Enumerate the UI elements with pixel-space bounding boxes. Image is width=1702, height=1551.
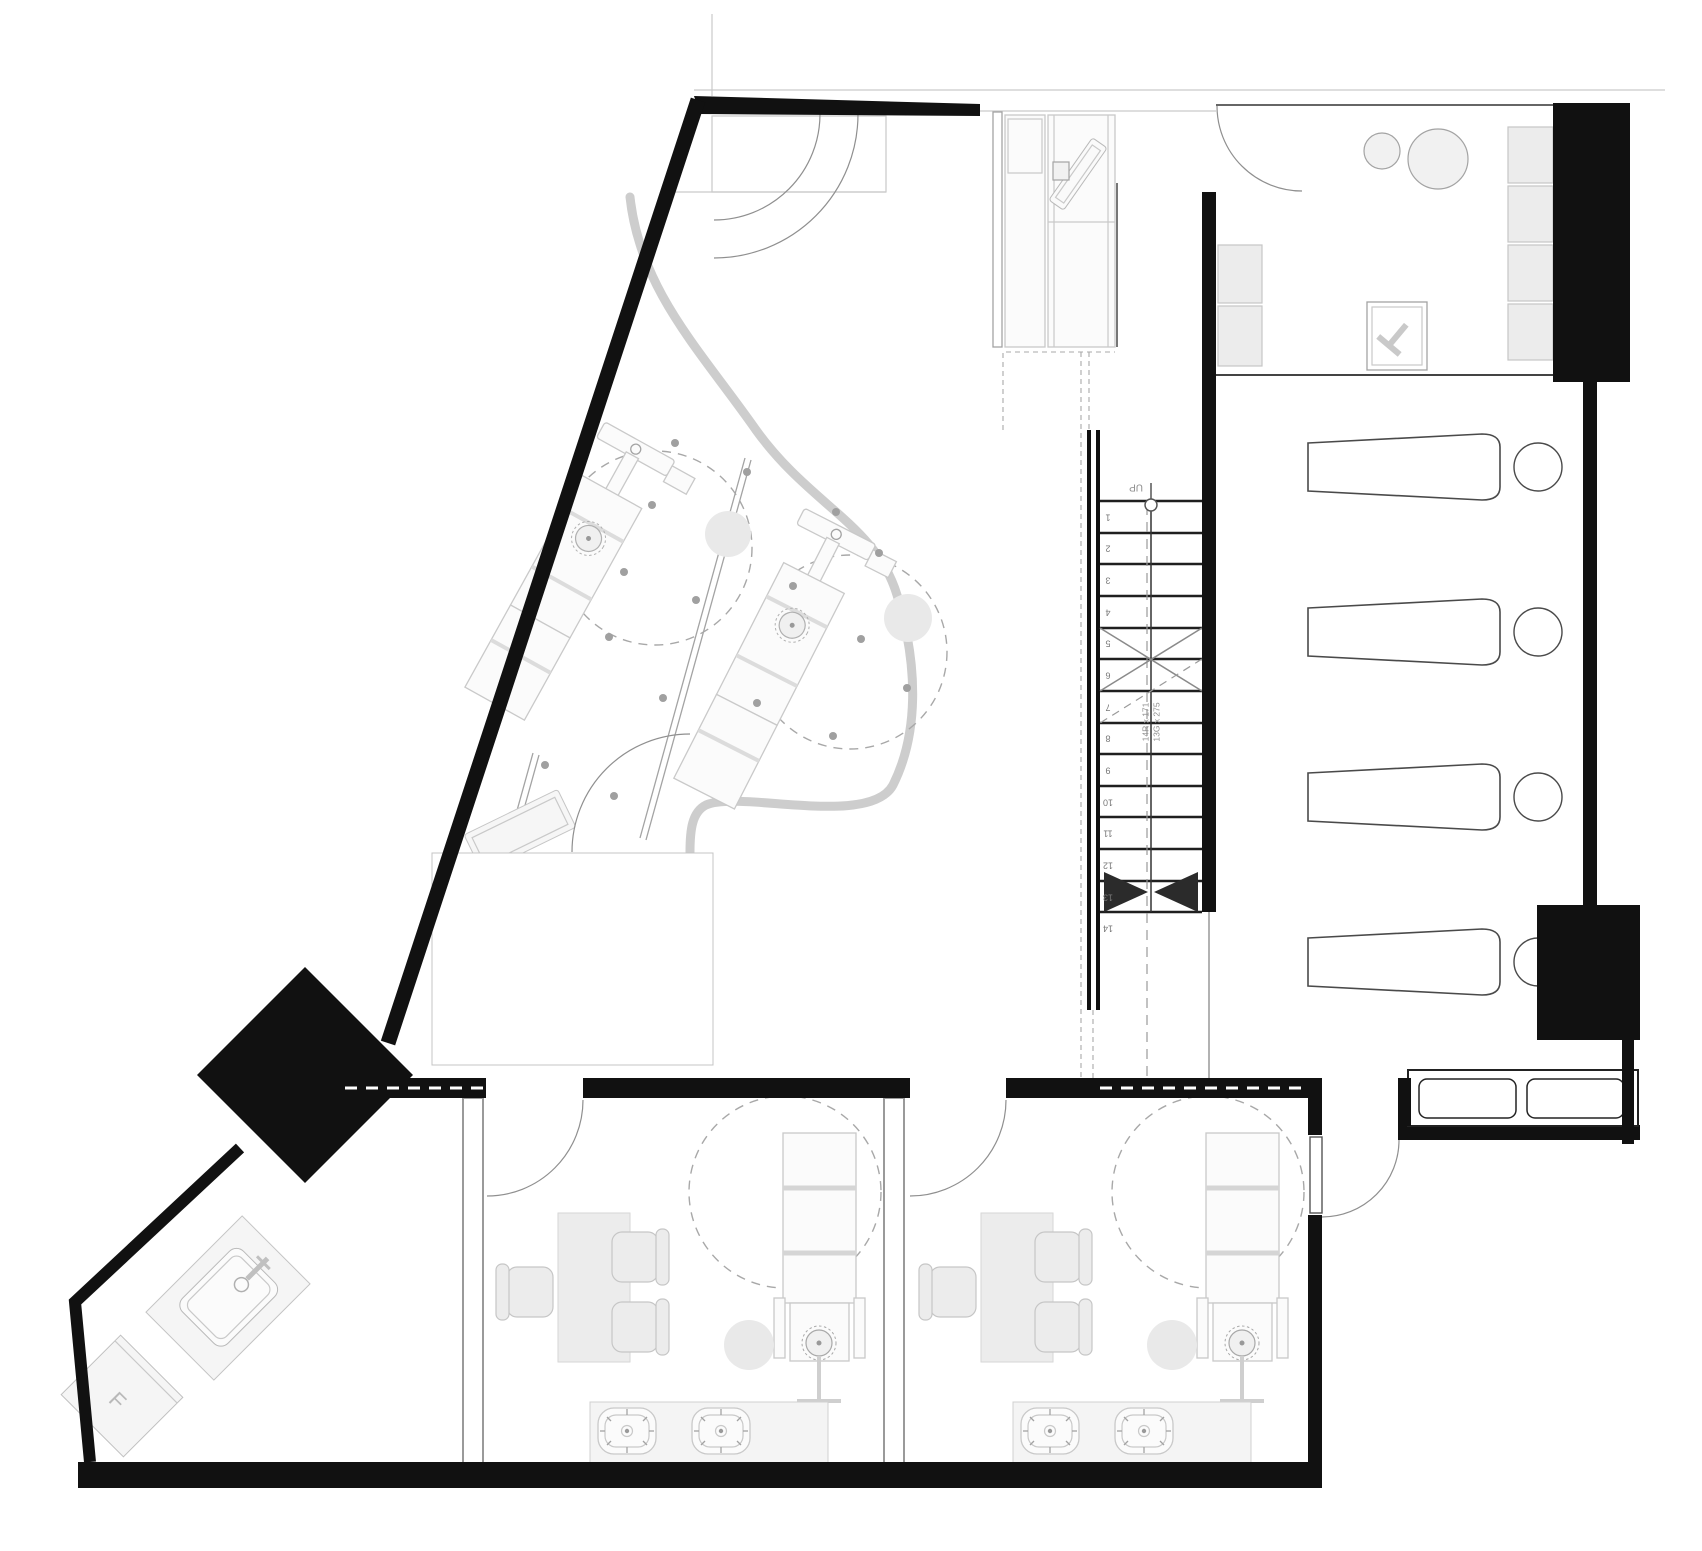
stair-goings-annotation: 13G x 275 xyxy=(1151,702,1161,741)
top-right-column xyxy=(1553,103,1630,382)
cabinet xyxy=(1218,306,1262,366)
utility-sink-unit xyxy=(146,1216,310,1380)
entry-counter xyxy=(712,116,886,192)
step-number: 9 xyxy=(1105,766,1110,776)
door-leaf xyxy=(1310,1137,1322,1213)
stair-right-wall xyxy=(1202,192,1216,912)
lounge xyxy=(1308,434,1562,995)
stool-2 xyxy=(884,594,932,642)
step-number: 8 xyxy=(1105,734,1110,744)
cabinet xyxy=(1508,304,1553,360)
stool-2 xyxy=(1514,608,1562,656)
valve-handle-icon xyxy=(1376,316,1417,357)
step-number: 3 xyxy=(1105,576,1110,586)
lounger-1 xyxy=(1308,434,1500,500)
stair: UP 14R x 171 13G x 275 1 2 3 4 5 6 7 8 9… xyxy=(1003,352,1202,1078)
right-block xyxy=(1537,905,1640,1040)
cabinet xyxy=(1218,245,1262,303)
direction-arrow-icon xyxy=(1104,872,1148,912)
round-table-small xyxy=(1364,133,1400,169)
consult-room-2 xyxy=(910,1096,1304,1464)
open-studio xyxy=(432,197,947,1065)
lounger-3 xyxy=(1308,764,1500,830)
step-number: 14 xyxy=(1103,924,1113,934)
sofa-arm xyxy=(1398,1078,1411,1126)
room2-right-wall-lower xyxy=(1308,1215,1322,1466)
door-swing-icon xyxy=(1322,1140,1399,1217)
treatment-station-2 xyxy=(668,508,899,823)
bottom-wall xyxy=(78,1462,1322,1488)
door-swing-icon xyxy=(1217,106,1302,191)
cabinet xyxy=(1508,127,1553,183)
lounger-2 xyxy=(1308,599,1500,665)
floor-opening-dashed xyxy=(1003,352,1115,430)
room1-left-wall xyxy=(463,1098,483,1466)
reception xyxy=(714,112,1117,347)
right-wall-lower xyxy=(1622,1040,1634,1144)
step-number: 13 xyxy=(1103,893,1113,903)
step-number: 7 xyxy=(1105,703,1110,713)
step-number: 6 xyxy=(1105,671,1110,681)
stair-up-label: UP xyxy=(1129,481,1143,492)
step-number: 12 xyxy=(1103,861,1113,871)
step-number: 10 xyxy=(1103,798,1113,808)
stair-risers-annotation: 14R x 171 xyxy=(1140,702,1150,741)
stool-1 xyxy=(1514,443,1562,491)
mid-wall-b xyxy=(583,1078,910,1098)
up-start-marker-icon xyxy=(1145,499,1157,511)
step-number: 11 xyxy=(1103,829,1112,839)
counter-left xyxy=(1005,115,1045,347)
room-divider-wall xyxy=(884,1098,904,1466)
stair-shaft-wall-left-outer xyxy=(1087,430,1091,1010)
void-block xyxy=(432,853,713,1065)
privacy-screen-curve xyxy=(630,197,913,852)
step-number: 2 xyxy=(1105,544,1110,554)
keyboard-icon xyxy=(1053,162,1069,180)
corridor xyxy=(1310,1070,1640,1217)
floor-plan: UP 14R x 171 13G x 275 1 2 3 4 5 6 7 8 9… xyxy=(0,0,1702,1551)
stool-1 xyxy=(705,511,751,557)
round-table-large xyxy=(1408,129,1468,189)
top-right-room xyxy=(1217,106,1553,370)
top-wall xyxy=(694,96,980,116)
step-number: 1 xyxy=(1105,513,1110,523)
door-swing-icon xyxy=(714,114,820,220)
sofa-base xyxy=(1398,1125,1640,1140)
door-swing-icon xyxy=(572,734,690,852)
utility-corner: F xyxy=(61,1216,310,1457)
door-swing-icon xyxy=(714,114,858,258)
stair-shaft-wall-left-inner xyxy=(1096,430,1100,1010)
room2-right-wall-upper xyxy=(1308,1098,1322,1135)
cabinet xyxy=(1508,245,1553,301)
step-number: 5 xyxy=(1105,639,1110,649)
direction-arrow-icon xyxy=(1154,872,1198,912)
lounger-4 xyxy=(1308,929,1500,995)
step-number: 4 xyxy=(1105,608,1110,618)
cabinet xyxy=(1508,186,1553,242)
partition xyxy=(993,112,1002,347)
consult-room-1 xyxy=(487,1096,881,1464)
right-wall xyxy=(1583,373,1597,908)
sofa-seat-1 xyxy=(1419,1079,1516,1118)
sofa-seat-2 xyxy=(1527,1079,1624,1118)
stool-3 xyxy=(1514,773,1562,821)
